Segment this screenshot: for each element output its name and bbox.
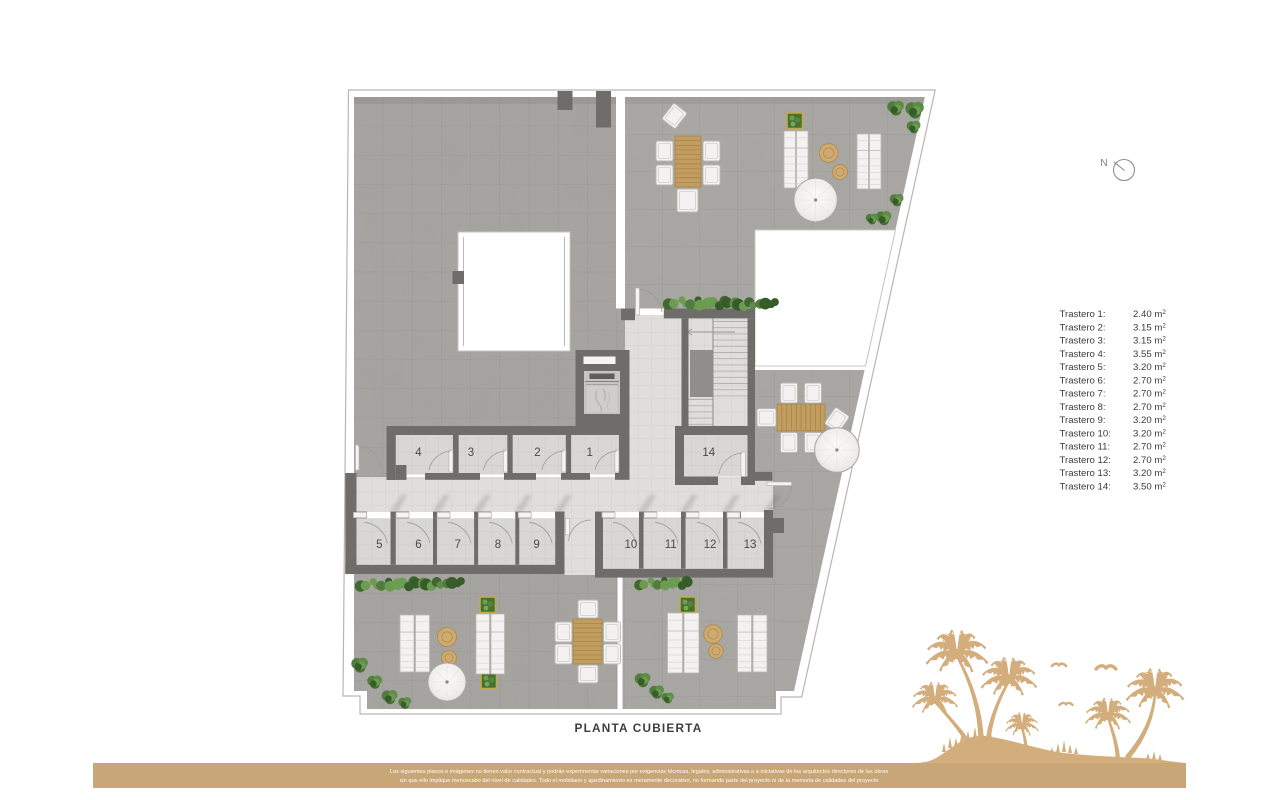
svg-text:Trastero 7:: Trastero 7: bbox=[1060, 389, 1106, 400]
svg-text:N: N bbox=[1100, 158, 1107, 169]
svg-text:Trastero 10:: Trastero 10: bbox=[1060, 428, 1111, 439]
svg-text:Trastero 8:: Trastero 8: bbox=[1060, 402, 1106, 413]
svg-text:Trastero 6:: Trastero 6: bbox=[1060, 375, 1106, 386]
svg-text:Trastero 9:: Trastero 9: bbox=[1060, 415, 1106, 426]
svg-text:3.15 m2: 3.15 m2 bbox=[1133, 336, 1166, 347]
svg-text:8: 8 bbox=[495, 539, 501, 551]
svg-text:1: 1 bbox=[586, 447, 592, 459]
svg-text:3.50 m2: 3.50 m2 bbox=[1133, 482, 1166, 493]
svg-text:3.20 m2: 3.20 m2 bbox=[1133, 468, 1166, 479]
svg-text:3.20 m2: 3.20 m2 bbox=[1133, 362, 1166, 373]
svg-text:Trastero 11:: Trastero 11: bbox=[1060, 442, 1111, 453]
svg-text:3.55 m2: 3.55 m2 bbox=[1133, 349, 1166, 360]
svg-text:2.70 m2: 2.70 m2 bbox=[1133, 389, 1166, 400]
svg-text:13: 13 bbox=[744, 539, 757, 551]
svg-text:PLANTA CUBIERTA: PLANTA CUBIERTA bbox=[575, 721, 703, 735]
svg-text:Trastero 14:: Trastero 14: bbox=[1060, 482, 1111, 493]
svg-text:6: 6 bbox=[415, 539, 421, 551]
svg-text:3.15 m2: 3.15 m2 bbox=[1133, 322, 1166, 333]
svg-text:2.70 m2: 2.70 m2 bbox=[1133, 442, 1166, 453]
svg-text:2.70 m2: 2.70 m2 bbox=[1133, 402, 1166, 413]
svg-text:sin que ello implique menoscab: sin que ello implique menoscabo del nive… bbox=[400, 778, 879, 784]
svg-text:Trastero 1:: Trastero 1: bbox=[1060, 309, 1106, 320]
svg-text:3.20 m2: 3.20 m2 bbox=[1133, 428, 1166, 439]
svg-text:Trastero 12:: Trastero 12: bbox=[1060, 455, 1111, 466]
svg-text:3.20 m2: 3.20 m2 bbox=[1133, 415, 1166, 426]
svg-text:7: 7 bbox=[454, 539, 460, 551]
svg-text:Trastero 13:: Trastero 13: bbox=[1060, 468, 1111, 479]
svg-text:3: 3 bbox=[468, 447, 474, 459]
svg-text:14: 14 bbox=[702, 447, 715, 459]
svg-text:10: 10 bbox=[625, 539, 638, 551]
svg-text:2: 2 bbox=[534, 447, 540, 459]
svg-text:2.70 m2: 2.70 m2 bbox=[1133, 375, 1166, 386]
svg-text:Trastero 3:: Trastero 3: bbox=[1060, 336, 1106, 347]
svg-text:Trastero 2:: Trastero 2: bbox=[1060, 322, 1106, 333]
svg-text:4: 4 bbox=[415, 447, 422, 459]
svg-text:2.70 m2: 2.70 m2 bbox=[1133, 455, 1166, 466]
svg-text:Trastero 5:: Trastero 5: bbox=[1060, 362, 1106, 373]
svg-text:11: 11 bbox=[665, 539, 677, 551]
svg-text:5: 5 bbox=[376, 539, 382, 551]
svg-text:12: 12 bbox=[704, 539, 717, 551]
svg-text:9: 9 bbox=[533, 539, 539, 551]
svg-text:2.40 m2: 2.40 m2 bbox=[1133, 309, 1166, 320]
svg-text:Trastero 4:: Trastero 4: bbox=[1060, 349, 1106, 360]
svg-text:Los siguientes planos e imágen: Los siguientes planos e imágenes no tien… bbox=[390, 769, 889, 775]
